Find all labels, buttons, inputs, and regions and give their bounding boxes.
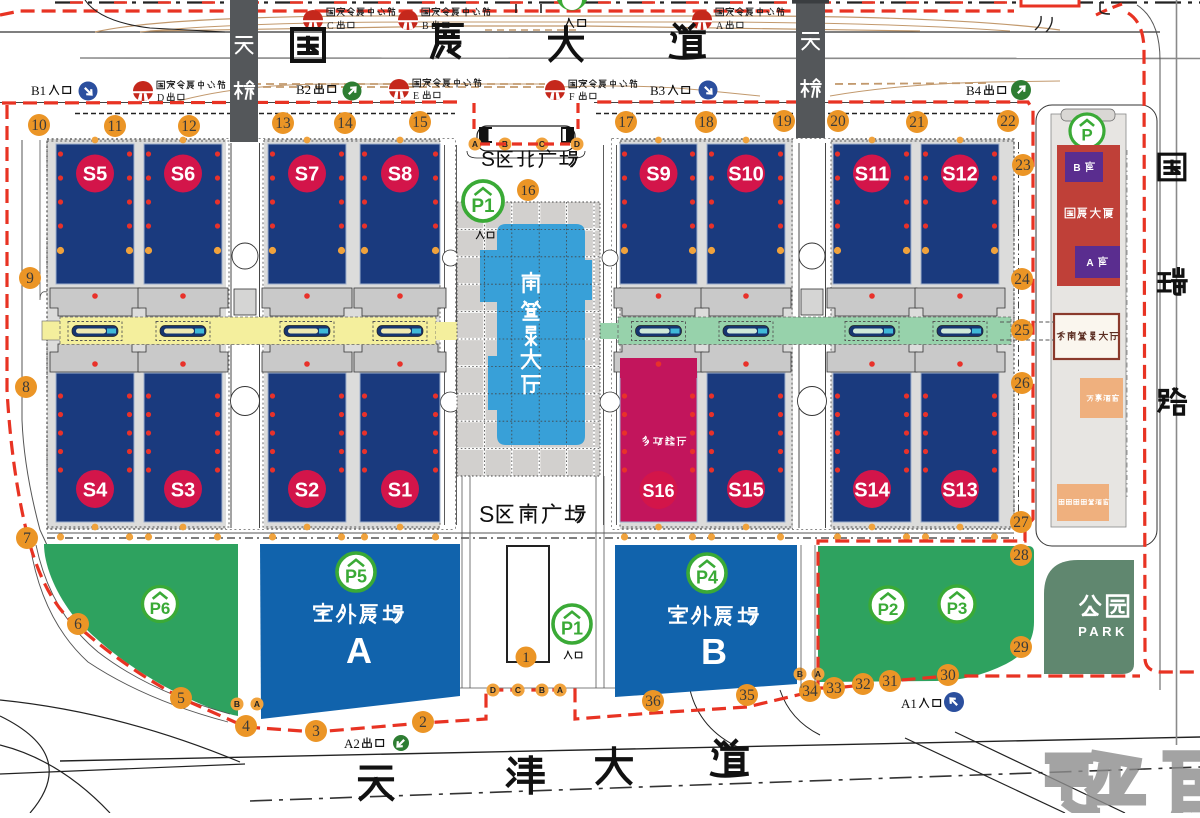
svg-text:7: 7 <box>23 530 31 547</box>
svg-text:D: D <box>574 139 580 149</box>
svg-text:2: 2 <box>419 714 427 731</box>
svg-text:10: 10 <box>31 117 47 134</box>
svg-text:A: A <box>557 685 563 695</box>
svg-text:B1: B1 <box>31 83 46 98</box>
svg-text:29: 29 <box>1013 639 1029 656</box>
svg-text:B2: B2 <box>296 82 311 97</box>
svg-text:P5: P5 <box>345 567 367 587</box>
svg-text:S6: S6 <box>171 164 195 186</box>
svg-text:8: 8 <box>22 379 30 396</box>
svg-text:23: 23 <box>1015 157 1031 174</box>
svg-text:B: B <box>797 669 803 679</box>
svg-text:P1: P1 <box>471 196 495 217</box>
svg-text:13: 13 <box>275 115 291 132</box>
svg-text:12: 12 <box>181 118 197 135</box>
svg-text:S: S <box>479 501 494 527</box>
svg-text:F: F <box>569 92 575 103</box>
svg-text:14: 14 <box>337 115 353 132</box>
svg-text:22: 22 <box>1000 113 1016 130</box>
svg-text:S13: S13 <box>942 480 978 502</box>
svg-text:S9: S9 <box>646 164 670 186</box>
svg-text:P1: P1 <box>561 619 583 639</box>
svg-text:PARK: PARK <box>1078 624 1128 639</box>
svg-text:A1: A1 <box>901 696 917 711</box>
svg-text:S5: S5 <box>83 164 107 186</box>
svg-text:S7: S7 <box>295 164 319 186</box>
svg-text:B: B <box>422 21 429 32</box>
svg-text:B: B <box>701 631 727 672</box>
svg-text:D: D <box>490 685 496 695</box>
svg-text:A: A <box>815 669 821 679</box>
svg-text:31: 31 <box>882 673 898 690</box>
svg-text:A: A <box>472 139 478 149</box>
svg-text:B3: B3 <box>650 83 665 98</box>
svg-text:36: 36 <box>645 693 661 710</box>
svg-text:S8: S8 <box>388 164 412 186</box>
svg-text:A2: A2 <box>344 736 360 751</box>
svg-text:28: 28 <box>1013 547 1029 564</box>
svg-text:17: 17 <box>618 114 634 131</box>
svg-text:A: A <box>716 21 724 32</box>
svg-text:34: 34 <box>802 683 818 700</box>
svg-text:S4: S4 <box>83 480 108 502</box>
svg-text:P6: P6 <box>150 599 171 618</box>
svg-text:A: A <box>346 630 372 671</box>
svg-text:35: 35 <box>739 687 755 704</box>
svg-text:A: A <box>1086 258 1093 269</box>
svg-text:P2: P2 <box>878 600 899 619</box>
svg-text:16: 16 <box>521 183 537 199</box>
svg-text:C: C <box>327 21 334 32</box>
svg-text:26: 26 <box>1014 375 1030 392</box>
svg-text:S2: S2 <box>295 480 319 502</box>
svg-text:24: 24 <box>1014 271 1030 288</box>
svg-text:S11: S11 <box>855 164 889 186</box>
svg-text:P3: P3 <box>947 599 968 618</box>
svg-text:C: C <box>515 685 521 695</box>
svg-text:19: 19 <box>776 113 792 130</box>
svg-text:27: 27 <box>1013 514 1029 531</box>
svg-text:P: P <box>1081 126 1092 145</box>
svg-text:S15: S15 <box>728 480 764 502</box>
svg-text:A: A <box>254 699 260 709</box>
svg-text:S3: S3 <box>171 480 195 502</box>
svg-text:32: 32 <box>855 676 871 693</box>
svg-text:S1: S1 <box>388 480 412 502</box>
svg-text:P4: P4 <box>696 568 718 588</box>
svg-text:S16: S16 <box>642 481 674 501</box>
svg-text:S10: S10 <box>728 164 764 186</box>
svg-text:9: 9 <box>26 270 34 287</box>
svg-text:21: 21 <box>909 114 925 131</box>
svg-text:B: B <box>539 685 545 695</box>
svg-text:1: 1 <box>522 650 530 666</box>
svg-text:33: 33 <box>826 680 842 697</box>
svg-text:11: 11 <box>108 118 123 135</box>
svg-text:25: 25 <box>1014 322 1030 339</box>
svg-text:D: D <box>157 93 164 104</box>
svg-text:15: 15 <box>412 114 428 131</box>
svg-text:6: 6 <box>74 616 82 633</box>
svg-text:20: 20 <box>830 113 846 130</box>
svg-text:5: 5 <box>177 690 185 707</box>
svg-text:B4: B4 <box>966 83 982 98</box>
svg-text:B: B <box>1073 163 1080 174</box>
svg-text:4: 4 <box>242 718 250 735</box>
svg-text:3: 3 <box>312 723 320 740</box>
svg-text:S14: S14 <box>854 480 890 502</box>
svg-text:30: 30 <box>940 667 956 684</box>
svg-text:E: E <box>413 91 419 102</box>
svg-text:S12: S12 <box>942 164 978 186</box>
svg-text:18: 18 <box>698 114 714 131</box>
svg-text:S: S <box>481 148 495 171</box>
svg-text:B: B <box>234 699 240 709</box>
